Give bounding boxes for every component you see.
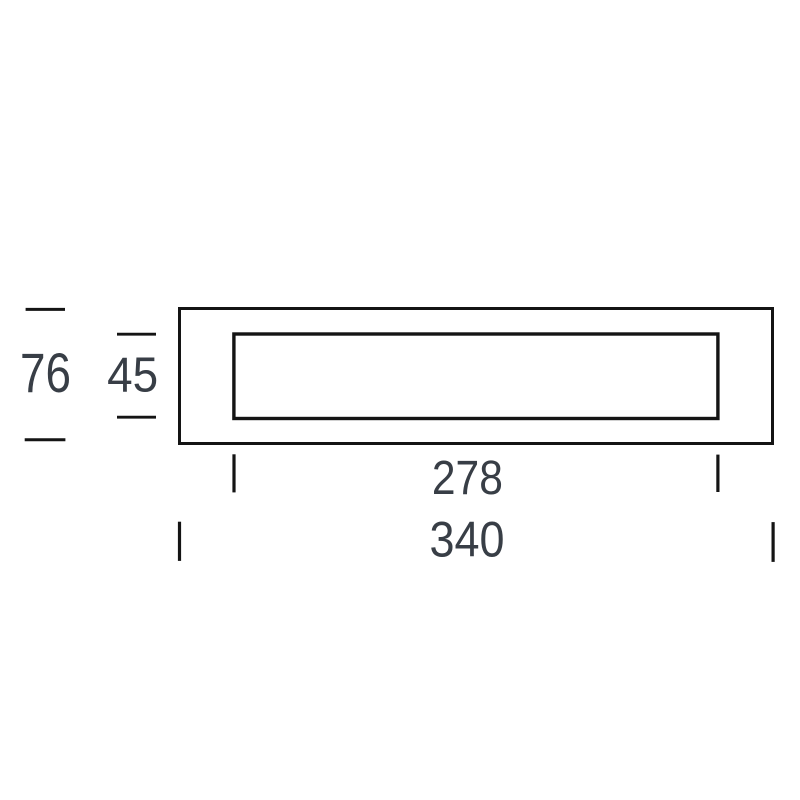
svg-text:340: 340	[430, 511, 505, 568]
svg-text:76: 76	[20, 342, 71, 404]
svg-text:45: 45	[107, 348, 158, 403]
svg-text:278: 278	[432, 451, 503, 505]
